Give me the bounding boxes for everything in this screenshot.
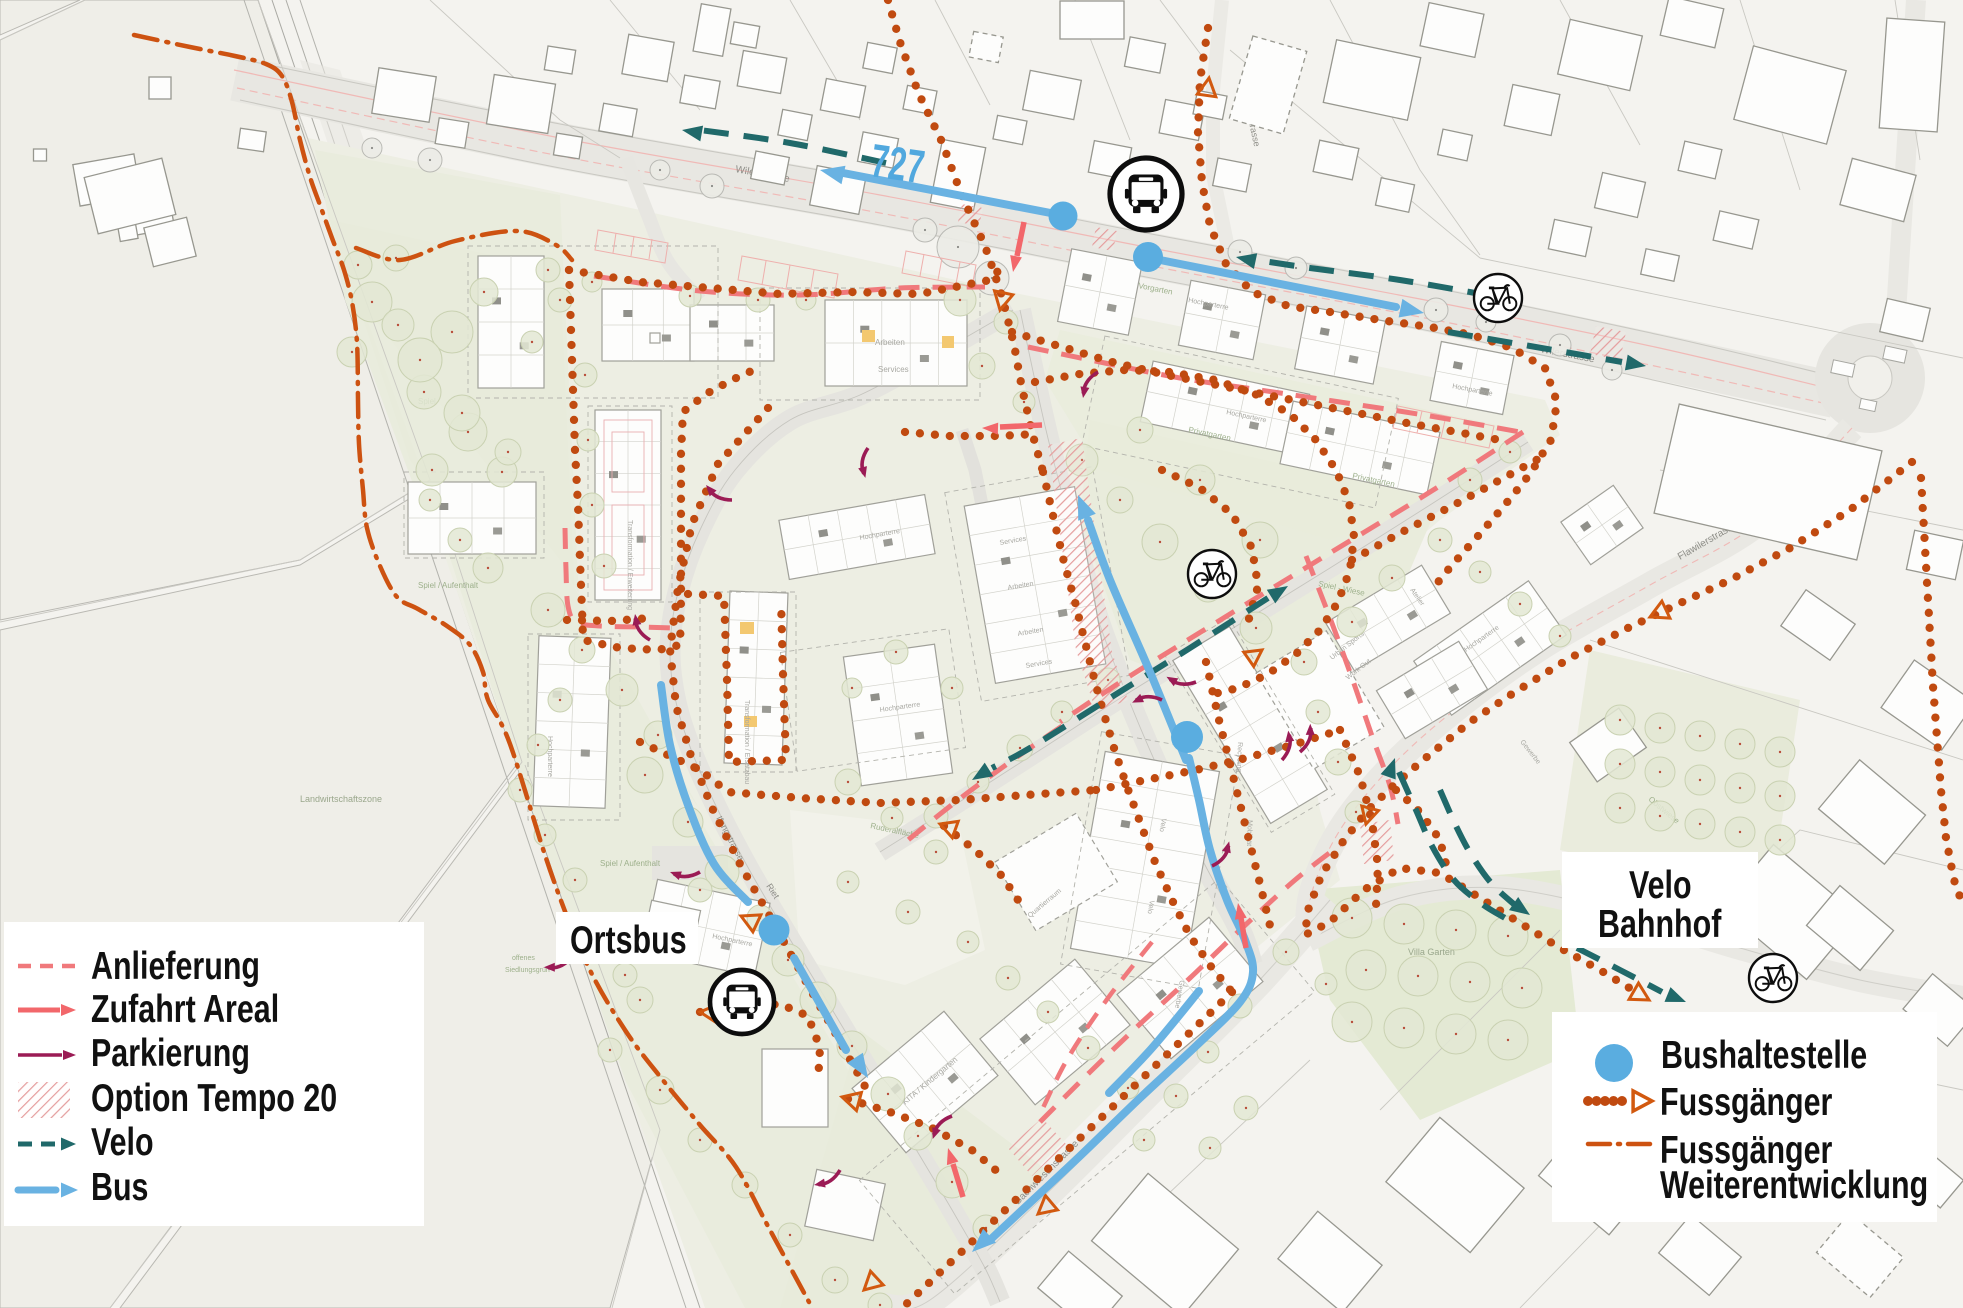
- svg-text:Spiel / Aufenthalt: Spiel / Aufenthalt: [418, 581, 479, 590]
- svg-text:Siedlungsgrün: Siedlungsgrün: [505, 967, 550, 974]
- svg-text:Services: Services: [878, 365, 909, 374]
- svg-text:Velo: Velo: [91, 1120, 154, 1163]
- svg-text:Anlieferung: Anlieferung: [91, 944, 260, 987]
- svg-text:Velo: Velo: [1629, 863, 1692, 906]
- svg-text:Weiterentwicklung: Weiterentwicklung: [1660, 1163, 1928, 1206]
- svg-text:Bus: Bus: [91, 1165, 148, 1208]
- svg-text:Arbeiten: Arbeiten: [875, 338, 905, 347]
- svg-text:727: 727: [868, 134, 928, 194]
- svg-text:Transformation / Erweiterung: Transformation / Erweiterung: [626, 520, 633, 610]
- svg-text:Option Tempo 20: Option Tempo 20: [91, 1076, 337, 1119]
- svg-text:offenes: offenes: [512, 955, 535, 962]
- svg-text:Zufahrt Areal: Zufahrt Areal: [91, 987, 279, 1030]
- svg-text:Landwirtschaftszone: Landwirtschaftszone: [300, 794, 382, 804]
- svg-text:Fussgänger: Fussgänger: [1660, 1080, 1833, 1123]
- svg-text:Ortsbus: Ortsbus: [570, 918, 687, 961]
- svg-text:Bahnhof: Bahnhof: [1598, 902, 1722, 945]
- svg-text:Spiel / Aufenthalt: Spiel / Aufenthalt: [600, 859, 661, 868]
- svg-text:Bushaltestelle: Bushaltestelle: [1661, 1033, 1867, 1076]
- svg-text:Transformation / Ersatzbau: Transformation / Ersatzbau: [743, 700, 750, 784]
- svg-text:Parkierung: Parkierung: [91, 1031, 250, 1074]
